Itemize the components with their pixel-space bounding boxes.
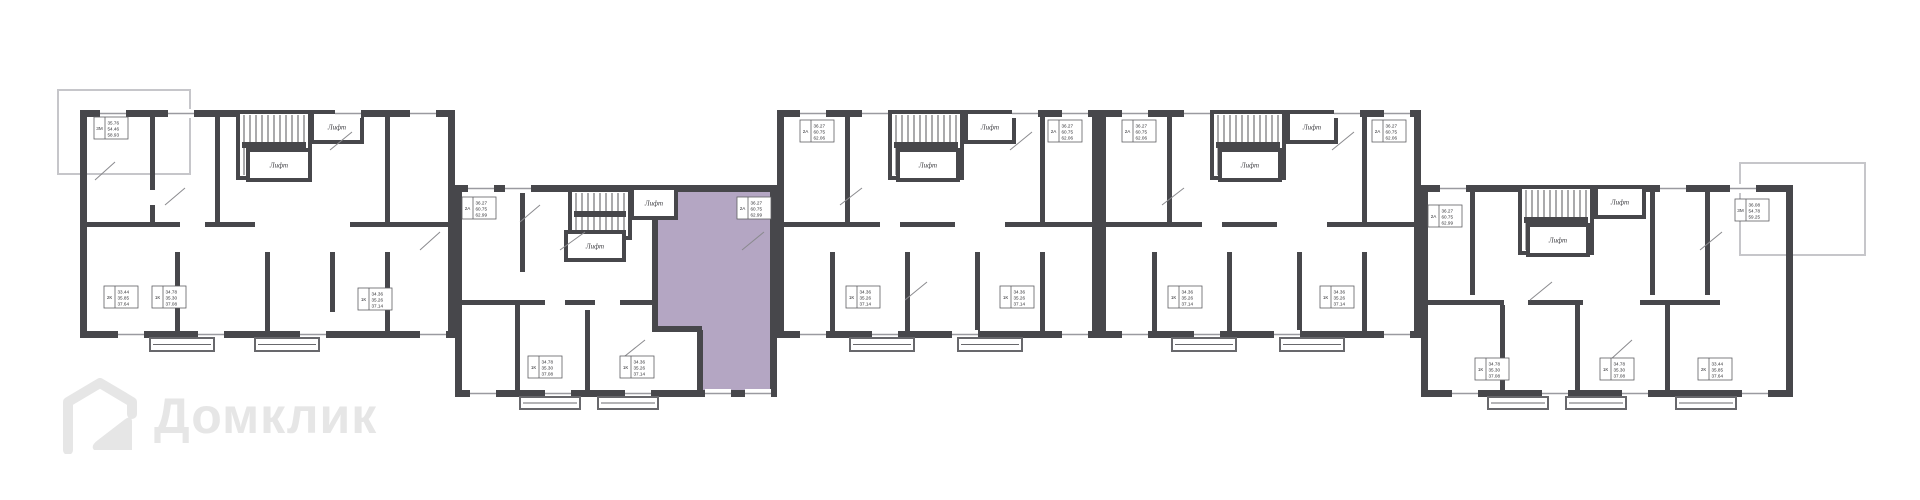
unit-label: 2А36.2760.7562.99 — [737, 197, 771, 219]
unit-label: 1К34.7835.3037.08 — [528, 356, 562, 378]
unit-area-a1: 36.08 — [1749, 203, 1761, 208]
unit-label: 1К34.3635.2637.14 — [1320, 286, 1354, 308]
lift-label: Лифт — [980, 124, 999, 132]
unit-area-a1: 36.27 — [1386, 124, 1398, 129]
floorplan-canvas: ЛифтЛифтЛифтЛифтЛифтЛифтЛифтЛифтЛифтЛифт… — [0, 0, 1920, 500]
unit-area-a1: 34.36 — [860, 290, 872, 295]
balcony — [1280, 338, 1344, 351]
window-mark — [505, 184, 531, 193]
interior-wall — [265, 252, 270, 338]
interior-wall — [205, 222, 255, 227]
unit-area-a3: 37.14 — [1334, 302, 1346, 307]
window-mark — [420, 330, 446, 339]
door-line — [1162, 188, 1184, 205]
outer-wall — [455, 185, 462, 397]
unit-label: 2А36.2760.7562.06 — [1048, 120, 1082, 142]
window-mark — [800, 109, 826, 118]
interior-wall — [565, 300, 595, 305]
unit-label: 1К34.7835.3037.08 — [152, 286, 186, 308]
window-mark — [1184, 109, 1210, 118]
unit-area-a1: 34.36 — [634, 360, 646, 365]
lift-label: Лифт — [269, 162, 288, 170]
unit-label: 1К34.3635.2637.14 — [1000, 286, 1034, 308]
interior-wall — [697, 330, 703, 397]
unit-area-a2: 60.75 — [751, 207, 763, 212]
unit-type: 2А — [1125, 129, 1132, 134]
outer-wall — [1421, 185, 1428, 397]
door-line — [840, 188, 862, 205]
unit-area-a1: 34.36 — [1182, 290, 1194, 295]
window-mark — [745, 389, 771, 398]
interior-wall — [1104, 222, 1202, 227]
window-mark — [1660, 184, 1686, 193]
unit-area-a2: 35.85 — [118, 296, 130, 301]
unit-area-a1: 33.44 — [1712, 362, 1724, 367]
unit-area-a3: 37.08 — [542, 372, 554, 377]
interior-wall — [900, 222, 955, 227]
lift-label: Лифт — [327, 124, 346, 132]
interior-wall — [1528, 300, 1583, 305]
unit-area-a3: 62.99 — [751, 213, 763, 218]
unit-area-a1: 34.78 — [1489, 362, 1501, 367]
window-mark — [1122, 109, 1148, 118]
lift-room: Лифт — [966, 112, 1014, 142]
unit-label: 1К34.7835.3037.08 — [1600, 358, 1634, 380]
unit-area-a1: 34.78 — [542, 360, 554, 365]
unit-label: 1К34.7835.3037.08 — [1475, 358, 1509, 380]
unit-area-a2: 35.30 — [542, 366, 554, 371]
lift-room: Лифт — [898, 150, 958, 180]
window-mark — [168, 109, 194, 118]
door-line — [1700, 232, 1722, 250]
lift-room: Лифт — [632, 188, 676, 218]
unit-area-a3: 37.14 — [372, 304, 384, 309]
lift-label: Лифт — [1302, 124, 1321, 132]
balcony — [255, 338, 319, 351]
unit-area-a1: 36.27 — [476, 201, 488, 206]
lift-label: Лифт — [585, 243, 604, 251]
unit-type: 1К — [531, 365, 537, 370]
unit-area-a2: 60.75 — [1062, 130, 1074, 135]
unit-type: 2А — [1051, 129, 1058, 134]
interior-wall — [1040, 252, 1045, 338]
interior-wall — [150, 205, 155, 222]
unit-area-a1: 34.36 — [372, 292, 384, 297]
unit-area-a2: 35.26 — [1014, 296, 1026, 301]
interior-wall — [782, 222, 880, 227]
stair-landing — [1216, 142, 1280, 148]
unit-area-a2: 54.78 — [1749, 209, 1761, 214]
window-mark — [1730, 184, 1756, 193]
interior-wall — [1500, 305, 1505, 397]
unit-type: 1К — [623, 365, 629, 370]
stair-landing — [1524, 217, 1588, 223]
interior-wall — [1297, 252, 1302, 338]
unit-type: 2А — [740, 206, 747, 211]
unit-label: 2А36.2760.7562.06 — [1372, 120, 1406, 142]
window-mark — [1334, 109, 1360, 118]
unit-area-a2: 60.75 — [814, 130, 826, 135]
interior-wall — [975, 252, 980, 338]
interior-wall — [652, 326, 702, 332]
interior-wall — [585, 310, 590, 393]
window-mark — [705, 389, 731, 398]
lift-room: Лифт — [1220, 150, 1280, 180]
unit-label: 1К34.3635.2637.14 — [620, 356, 654, 378]
interior-wall — [1362, 252, 1367, 338]
unit-area-a1: 36.27 — [751, 201, 763, 206]
unit-area-a2: 35.26 — [1334, 296, 1346, 301]
unit-label: 2К33.4435.8537.64 — [104, 286, 138, 308]
unit-label: 2А36.2760.7562.99 — [1428, 205, 1462, 227]
unit-label: 3М36.0854.7859.25 — [1735, 199, 1769, 221]
unit-type: 2К — [107, 295, 113, 300]
unit-type: 1К — [1171, 295, 1177, 300]
unit-label: 2А36.2760.7562.99 — [462, 197, 496, 219]
balcony — [150, 338, 214, 351]
unit-label: 2А36.2760.7562.06 — [1122, 120, 1156, 142]
interior-wall — [1650, 192, 1655, 295]
interior-wall — [1470, 192, 1475, 295]
unit-area-a2: 35.30 — [1614, 368, 1626, 373]
unit-area-a1: 35.76 — [108, 121, 120, 126]
highlighted-apartment-area[interactable] — [700, 330, 774, 394]
lift-room: Лифт — [1528, 225, 1588, 255]
lift-room: Лифт — [566, 232, 624, 260]
unit-area-a1: 34.78 — [1614, 362, 1626, 367]
balcony — [1172, 338, 1236, 351]
interior-wall — [1327, 222, 1417, 227]
window-mark — [1062, 109, 1088, 118]
interior-wall — [520, 192, 525, 272]
window-mark — [1452, 389, 1478, 398]
unit-area-a2: 60.75 — [1386, 130, 1398, 135]
unit-area-a3: 37.08 — [1489, 374, 1501, 379]
unit-type: 3М — [1737, 208, 1744, 213]
unit-area-a1: 34.36 — [1014, 290, 1026, 295]
door-line — [1610, 340, 1632, 360]
window-mark — [800, 330, 826, 339]
interior-wall — [1040, 117, 1045, 222]
unit-area-a3: 62.06 — [1386, 136, 1398, 141]
interior-wall — [460, 300, 545, 305]
door-line — [420, 232, 440, 250]
lift-room: Лифт — [1288, 112, 1336, 142]
interior-wall — [1362, 117, 1367, 222]
unit-area-a2: 35.26 — [372, 298, 384, 303]
interior-wall — [150, 117, 155, 190]
stair-landing — [574, 211, 626, 217]
unit-label: 3М35.7654.4658.93 — [94, 117, 128, 139]
unit-type: 1К — [1478, 367, 1484, 372]
outer-wall — [80, 110, 87, 338]
unit-type: 1К — [1323, 295, 1329, 300]
window-mark — [862, 109, 888, 118]
unit-type: 1К — [1003, 295, 1009, 300]
window-mark — [1012, 109, 1038, 118]
unit-area-a3: 37.14 — [1014, 302, 1026, 307]
interior-wall — [1426, 300, 1504, 305]
unit-area-a3: 37.14 — [634, 372, 646, 377]
balcony — [1676, 397, 1736, 409]
unit-area-a2: 35.30 — [1489, 368, 1501, 373]
unit-type: 1К — [155, 295, 161, 300]
unit-area-a3: 59.25 — [1749, 215, 1761, 220]
lift-room: Лифт — [1596, 187, 1644, 217]
interior-wall — [830, 252, 835, 338]
unit-area-a3: 62.99 — [1442, 221, 1454, 226]
lift-label: Лифт — [918, 162, 937, 170]
window-mark — [118, 330, 144, 339]
stair-landing — [242, 142, 306, 148]
lift-label: Лифт — [1610, 199, 1629, 207]
unit-label: 2А36.2760.7562.06 — [800, 120, 834, 142]
unit-label: 1К34.3635.2637.14 — [846, 286, 880, 308]
unit-area-a2: 35.26 — [634, 366, 646, 371]
stair-landing — [894, 142, 958, 148]
interior-wall — [330, 252, 335, 312]
interior-wall — [385, 117, 390, 222]
unit-type: 2А — [803, 129, 810, 134]
interior-wall — [1227, 252, 1232, 338]
unit-area-a3: 37.08 — [1614, 374, 1626, 379]
window-mark — [1384, 330, 1410, 339]
door-line — [1530, 282, 1552, 300]
interior-wall — [1665, 305, 1670, 397]
interior-wall — [87, 222, 180, 227]
unit-type: 2К — [1701, 367, 1707, 372]
unit-area-a3: 62.06 — [814, 136, 826, 141]
door-line — [165, 188, 185, 205]
unit-area-a2: 60.75 — [476, 207, 488, 212]
unit-area-a2: 54.46 — [108, 127, 120, 132]
interior-wall — [215, 117, 220, 222]
balcony — [850, 338, 914, 351]
unit-area-a2: 35.85 — [1712, 368, 1724, 373]
unit-type: 2А — [1431, 214, 1438, 219]
interior-wall — [515, 305, 520, 393]
interior-wall — [1222, 222, 1277, 227]
interior-wall — [1575, 305, 1580, 397]
unit-area-a1: 36.27 — [1442, 209, 1454, 214]
unit-area-a2: 60.75 — [1442, 215, 1454, 220]
unit-area-a1: 36.27 — [1136, 124, 1148, 129]
unit-area-a3: 62.06 — [1136, 136, 1148, 141]
window-mark — [1384, 109, 1410, 118]
window-mark — [470, 389, 496, 398]
floorplan-svg: ЛифтЛифтЛифтЛифтЛифтЛифтЛифтЛифтЛифтЛифт… — [0, 0, 1920, 500]
unit-type: 1К — [1603, 367, 1609, 372]
unit-area-a3: 62.06 — [1062, 136, 1074, 141]
window-mark — [1122, 330, 1148, 339]
unit-area-a1: 36.27 — [814, 124, 826, 129]
unit-type: 1К — [361, 297, 367, 302]
unit-label: 1К34.3635.2637.14 — [358, 288, 392, 310]
interior-wall — [620, 300, 655, 305]
unit-area-a3: 37.14 — [860, 302, 872, 307]
unit-type: 2А — [465, 206, 472, 211]
balcony — [1566, 397, 1626, 409]
lift-label: Лифт — [1240, 162, 1259, 170]
unit-label: 1К34.3635.2637.14 — [1168, 286, 1202, 308]
unit-area-a3: 62.99 — [476, 213, 488, 218]
window-mark — [410, 109, 436, 118]
unit-area-a1: 36.27 — [1062, 124, 1074, 129]
window-mark — [335, 109, 361, 118]
window-mark — [468, 184, 494, 193]
unit-label: 2К33.4435.8537.64 — [1698, 358, 1732, 380]
unit-area-a1: 33.44 — [118, 290, 130, 295]
door-line — [95, 162, 115, 180]
interior-wall — [1152, 252, 1157, 338]
interior-wall — [1005, 222, 1095, 227]
window-mark — [1062, 330, 1088, 339]
unit-area-a3: 37.08 — [166, 302, 178, 307]
balcony — [598, 397, 658, 409]
interior-wall — [845, 117, 850, 222]
unit-type: 2А — [1375, 129, 1382, 134]
lift-room: Лифт — [248, 150, 310, 180]
lift-label: Лифт — [1548, 237, 1567, 245]
unit-area-a2: 60.75 — [1136, 130, 1148, 135]
unit-type: 3М — [96, 126, 103, 131]
interior-wall — [350, 222, 455, 227]
window-mark — [1440, 184, 1466, 193]
interior-wall — [905, 252, 910, 338]
unit-area-a2: 35.26 — [860, 296, 872, 301]
unit-area-a1: 34.78 — [166, 290, 178, 295]
unit-type: 1К — [849, 295, 855, 300]
interior-wall — [1167, 117, 1172, 222]
unit-area-a1: 34.36 — [1334, 290, 1346, 295]
unit-area-a3: 37.14 — [1182, 302, 1194, 307]
balcony — [520, 397, 580, 409]
unit-area-a2: 35.26 — [1182, 296, 1194, 301]
unit-area-a2: 35.30 — [166, 296, 178, 301]
interior-wall — [1640, 300, 1720, 305]
outer-wall — [1786, 185, 1793, 397]
unit-area-a3: 37.64 — [118, 302, 130, 307]
lift-label: Лифт — [644, 200, 663, 208]
window-mark — [1742, 389, 1768, 398]
balcony — [1488, 397, 1548, 409]
balcony — [958, 338, 1022, 351]
unit-area-a3: 58.93 — [108, 133, 120, 138]
unit-area-a3: 37.64 — [1712, 374, 1724, 379]
